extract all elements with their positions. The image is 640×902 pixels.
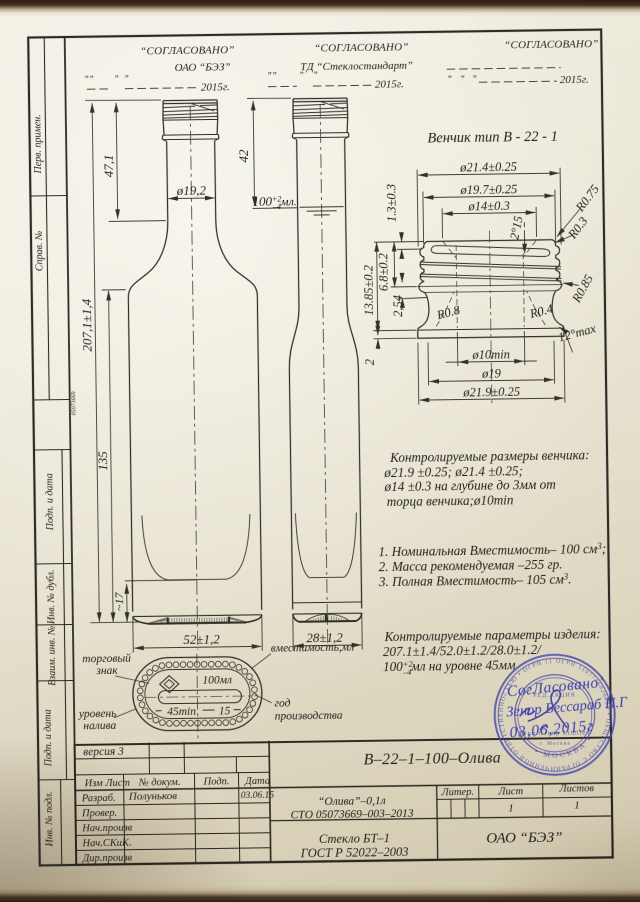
svg-text:2,54: 2,54 (391, 295, 405, 317)
svg-text:”: ” (299, 70, 304, 80)
svg-text:ø14 ±0.3 на глубине до 3м: ø14 ±0.3 на глубине до 3мм от (383, 477, 555, 494)
svg-text:ø14±0.3: ø14±0.3 (467, 199, 509, 214)
svg-text:1.3±0.3: 1.3±0.3 (384, 184, 399, 222)
svg-text:Стекло БТ–1: Стекло БТ–1 (319, 831, 390, 846)
svg-text:2015г.: 2015г. (560, 74, 589, 86)
svg-text:знак: знак (95, 665, 118, 677)
svg-text:Разраб.: Разраб. (81, 793, 116, 804)
svg-text:ø19.7±0.25: ø19.7±0.25 (459, 182, 517, 197)
svg-text:03.06.15: 03.06.15 (241, 791, 275, 801)
svg-text:Взаим. инв. №: Взаим. инв. № (46, 626, 58, 686)
svg-text:ø21.4±0.25: ø21.4±0.25 (459, 160, 517, 175)
svg-text:1: 1 (574, 799, 580, 811)
svg-text:Изм Лист: Изм Лист (84, 778, 131, 790)
svg-text:100+2–4мл на уровне 45мм: 100+2–4мл на уровне 45мм (383, 657, 516, 677)
svg-text:вместимость,мл: вместимость,мл (271, 642, 355, 655)
svg-text:уровень: уровень (78, 708, 117, 721)
svg-text:207,1±1,4: 207,1±1,4 (79, 298, 95, 351)
svg-text:ОАО “БЭЗ”: ОАО “БЭЗ” (175, 61, 231, 74)
svg-text:”: ” (124, 74, 129, 84)
svg-text:2015г.: 2015г. (375, 78, 404, 90)
svg-text:100+2–4мл.: 100+2–4мл. (252, 193, 297, 211)
svg-text:Инв. № подл.: Инв. № подл. (44, 791, 56, 847)
svg-text:R0.85: R0.85 (569, 272, 596, 305)
svg-text:Дир.произв: Дир.произв (82, 853, 133, 865)
svg-text:Дата: Дата (244, 776, 270, 787)
svg-text:R0.4: R0.4 (527, 301, 554, 321)
svg-text:Подп. и дата: Подп. и дата (44, 473, 56, 531)
svg-text:В–22–1–100–Олива: В–22–1–100–Олива (363, 750, 501, 769)
svg-text:2°15: 2°15 (507, 215, 525, 241)
svg-text:2015г.: 2015г. (201, 81, 230, 93)
svg-text:””: ”” (84, 74, 94, 84)
svg-text:Провер.: Провер. (81, 808, 117, 820)
svg-text:”: ” (313, 70, 318, 80)
svg-text:Подп. и дата: Подп. и дата (43, 709, 55, 767)
svg-text:42: 42 (236, 149, 251, 163)
svg-text:100мл: 100мл (202, 674, 232, 686)
svg-text:Лист: Лист (497, 786, 523, 797)
svg-text:1. Номинальная Вместимость–: 1. Номинальная Вместимость– 100 см3; (378, 541, 606, 559)
svg-text:”: ” (114, 74, 119, 84)
svg-text:ОАО “БЭЗ”: ОАО “БЭЗ” (486, 830, 562, 847)
svg-text:налива: налива (83, 720, 116, 732)
svg-text:Листов: Листов (558, 783, 594, 794)
svg-text:Инв. № дубл.: Инв. № дубл. (46, 569, 58, 625)
svg-text:52±1,2: 52±1,2 (183, 631, 220, 647)
svg-text:””: ”” (267, 71, 277, 81)
svg-text:Полуньков: Полуньков (128, 790, 178, 803)
svg-text:“Олива”–0,1л: “Олива”–0,1л (318, 795, 386, 808)
svg-text:05073669: 05073669 (71, 391, 77, 415)
svg-text:2: 2 (363, 359, 377, 365)
svg-text:ø19: ø19 (481, 366, 502, 380)
svg-text:год: год (274, 697, 290, 709)
svg-text:207.1±1.4/52.0±1.2/28.0±1.2/: 207.1±1.4/52.0±1.2/28.0±1.2/ (383, 642, 543, 659)
svg-text:”: ” (447, 74, 452, 84)
svg-text:“СОГЛАСОВАНО”: “СОГЛАСОВАНО” (314, 41, 408, 54)
svg-text:R0.8: R0.8 (434, 303, 462, 323)
svg-text:“СОГЛАСОВАНО”: “СОГЛАСОВАНО” (140, 44, 234, 57)
svg-text:торца венчика;ø10min: торца венчика;ø10min (387, 492, 514, 509)
svg-text:Литер.: Литер. (440, 787, 474, 798)
svg-text:3. Полная Вместимость– 105: 3. Полная Вместимость– 105 см3. (378, 572, 572, 590)
svg-text:47,1: 47,1 (101, 154, 116, 177)
svg-text:”: ” (472, 74, 477, 84)
svg-text:Нач.произв: Нач.произв (81, 823, 133, 835)
svg-text:15: 15 (219, 705, 231, 717)
svg-text:г. Москва: г. Москва (540, 741, 571, 747)
svg-text:13.85±0.2: 13.85±0.2 (361, 265, 376, 316)
svg-text:Контролируемые параметры изд: Контролируемые параметры изделия: (383, 626, 600, 644)
svg-text:135: 135 (95, 451, 110, 471)
svg-text:R0.3: R0.3 (565, 214, 591, 242)
svg-text:версия 3: версия 3 (83, 746, 124, 759)
svg-text:”: ” (460, 74, 465, 84)
svg-text:“СОГЛАСОВАНО”: “СОГЛАСОВАНО” (504, 38, 598, 51)
svg-text:1: 1 (508, 802, 514, 814)
svg-text:Нач.СКиК.: Нач.СКиК. (81, 838, 131, 850)
svg-text:производства: производства (275, 710, 343, 723)
svg-text:№ докум.: № докум. (138, 777, 181, 789)
svg-text:торговый: торговый (82, 652, 131, 666)
svg-text:СТО 05073669–003–2013: СТО 05073669–003–2013 (291, 808, 414, 822)
svg-text:Контролируемые размеры венчи: Контролируемые размеры венчика: (389, 447, 590, 465)
svg-text:6.8±0.2: 6.8±0.2 (376, 253, 391, 291)
svg-text:R0.75: R0.75 (572, 182, 602, 215)
svg-text:~17: ~17 (112, 591, 126, 611)
svg-text:Венчик тип В - 22 - 1: Венчик тип В - 22 - 1 (427, 129, 558, 147)
svg-text:Подп.: Подп. (203, 776, 230, 787)
svg-text:ø21.9±0.25: ø21.9±0.25 (462, 385, 520, 400)
svg-text:ø19,2: ø19,2 (176, 183, 207, 198)
svg-text:ø10min: ø10min (471, 347, 510, 362)
svg-text:45min: 45min (167, 706, 196, 718)
svg-text:Справ. №: Справ. № (34, 231, 46, 272)
svg-text:Перв. примен.: Перв. примен. (32, 114, 44, 174)
svg-text:ГОСТ Р 52022–2003: ГОСТ Р 52022–2003 (300, 845, 409, 861)
svg-text:12°max: 12°max (557, 321, 598, 344)
